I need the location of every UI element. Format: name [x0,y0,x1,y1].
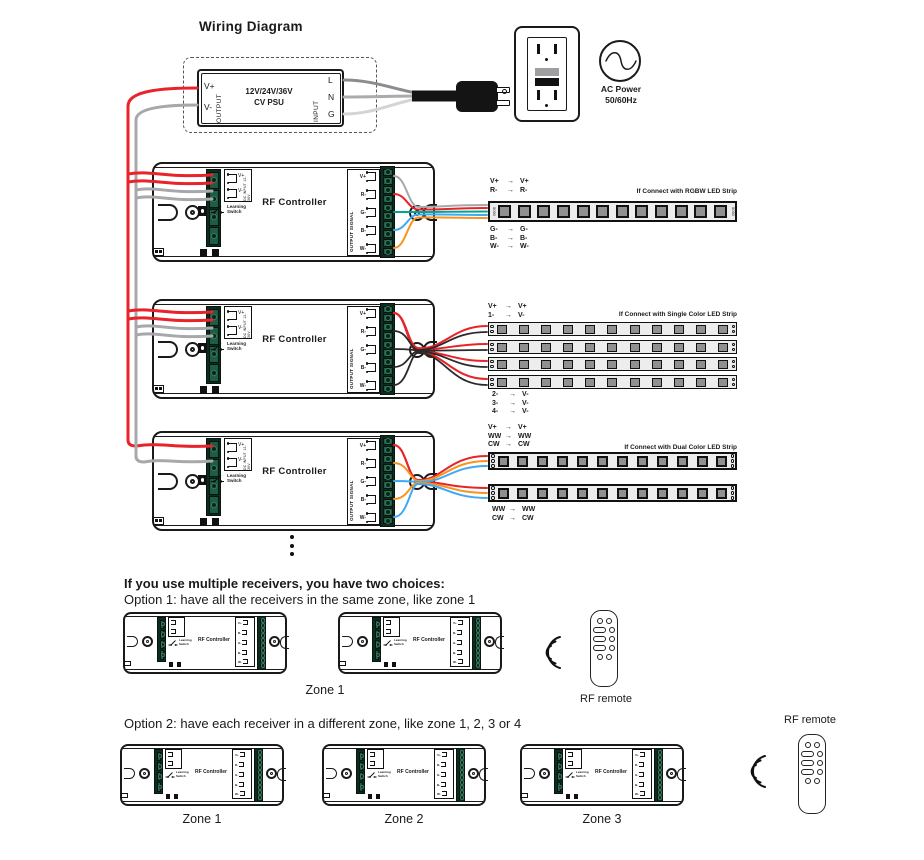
pad-hole [490,360,494,364]
page-title: Wiring Diagram [199,19,303,34]
outlet-slot-icon [537,44,540,54]
zone1-label-2: Zone 1 [162,812,242,826]
led-chip [497,343,507,352]
terminal-cell [459,776,463,780]
terminal-cell [383,438,393,446]
terminal-cell [359,752,363,761]
output-row: B- [356,226,376,235]
rf-controller-2: V+ V- DC INPUT 12-36V LearningSwitch RF … [152,299,435,399]
psu: V+ V- OUTPUT 12V/24V/36VCV PSU INPUT L N… [197,69,344,127]
terminal-cell [257,756,261,760]
dc-input-panel [168,617,185,637]
led-chip [630,360,640,369]
led-chip [563,325,573,334]
terminal-cell [475,639,479,643]
led-cells [495,323,731,335]
terminal-cell [257,776,261,780]
remote-button [805,742,811,748]
input-terminal-block [554,749,563,794]
plug-prong-icon [496,100,510,106]
indicator-led-icon [212,386,219,394]
remote-button [814,742,820,748]
terminal-cell [160,640,164,649]
screw-icon [266,768,277,779]
rf-remote-1 [590,610,618,687]
wire-vminus-bus [136,105,212,462]
terminal-cell [257,771,261,775]
led-chip [716,456,727,467]
switch-icon [383,639,393,647]
terminal-cell [459,766,463,770]
led-chip [716,488,727,499]
rgbw-top-labels: V+→V+ R-→R- [490,178,529,194]
cable-notch-icon [423,204,437,221]
strip-pads [731,325,737,334]
indicator-led-icon [212,518,219,526]
indicator-led-icon [200,518,207,526]
terminal-cell [209,496,219,514]
strip-pads [731,378,737,387]
rf-waves-icon [547,637,560,668]
single-bottom-labels: 2-→V- 3-→V- 4-→V- [492,391,529,415]
terminal-cell [375,650,379,659]
screw-icon [357,636,368,647]
terminal-cell [383,517,393,525]
dc-input-panel [367,749,384,769]
pad-hole [490,365,494,369]
rf-remote-2 [798,734,826,814]
psu-vminus-label: V- [204,102,212,112]
choices-heading: If you use multiple receivers, you have … [124,576,445,591]
led-chip [577,205,590,218]
terminal-cell [383,186,393,194]
output-terminal-block [654,748,663,802]
led-chip [607,360,617,369]
edge-connector-icon [323,793,330,798]
pad-hole [731,491,735,495]
terminal-cell [257,751,261,755]
terminal-cell [657,766,661,770]
led-chip [497,378,507,387]
terminal-cell [557,762,561,771]
rf-controller-mini-3: LearningSwitch RF Controller V+ R- G- B-… [120,744,284,806]
pad-hole [490,383,494,387]
led-chip [519,325,529,334]
edge-connector-icon [153,248,164,256]
led-chip [541,360,551,369]
led-cells [496,454,730,468]
power-plug [456,81,498,112]
led-chip [563,378,573,387]
terminal-cell [557,782,561,791]
wire-bracket-icon [228,458,237,467]
cable-notch-icon [479,768,488,781]
led-strip-dual-2 [488,484,737,502]
terminal-cell [383,455,393,463]
terminal-cell [557,772,561,781]
output-signal-label: OUTPUT SIGNAL [349,313,354,389]
terminal-cell [359,772,363,781]
terminal-cell [383,323,393,331]
match-button-icon [198,206,207,216]
terminal-cell [157,762,161,771]
pad-hole [731,486,735,490]
edge-connector-icon [153,517,164,525]
output-signal-label: OUTPUT SIGNAL [349,176,354,252]
led-chip [697,488,708,499]
output-terminal-block [254,748,263,802]
led-cells [495,358,731,370]
terminal-cell [257,791,261,795]
rf-controller-mini-5: LearningSwitch RF Controller V+ R- G- B-… [520,744,684,806]
outlet-slot-icon [554,90,557,100]
pad-hole [731,459,735,463]
pad-hole [491,486,495,490]
led-chip [630,343,640,352]
strip-pads [730,486,736,500]
remote-button [609,627,615,633]
wiring-layer [0,0,924,860]
output-panel: OUTPUT SIGNAL V+ R- G- B- W- [347,438,380,525]
led-chip [674,325,684,334]
led-chip [637,488,648,499]
remote-button [606,618,612,624]
indicator-led-icon [574,794,578,799]
terminal-cell [260,659,264,663]
wire-bracket-icon [228,189,237,198]
terminal-cell [383,376,393,384]
output-terminal-block [380,435,395,527]
learning-switch-label: LearningSwitch [227,204,246,215]
switch-icon [210,473,225,484]
terminal-cell [209,227,219,245]
terminal-cell [383,481,393,489]
output-row: B- [356,495,376,504]
mount-slot-icon [158,204,178,221]
terminal-cell [657,786,661,790]
learning-switch-label: LearningSwitch [227,341,246,352]
dc-input-panel [565,749,582,769]
led-chip [607,325,617,334]
pad-hole [732,365,736,369]
led-chip [517,488,528,499]
output-terminal-block [380,166,395,258]
terminal-cell [209,364,219,382]
led-chip [597,456,608,467]
led-chip [675,205,688,218]
led-chip [652,378,662,387]
led-chip [517,456,528,467]
terminal-cell [383,464,393,472]
led-chip [519,343,529,352]
controller-label: RF Controller [247,334,342,345]
strip-pads [730,454,736,468]
pad-hole [731,464,735,468]
remote-button [609,636,615,642]
terminal-cell [657,756,661,760]
led-chip [537,456,548,467]
led-chip [652,343,662,352]
mount-slot-icon [124,768,135,779]
dual-caption: If Connect with Dual Color LED Strip [560,444,737,451]
led-chip [657,456,668,467]
output-row: R- [356,190,376,199]
terminal-cell [157,752,161,761]
led-chip [652,325,662,334]
terminal-cell [160,630,164,639]
dc-input-panel [165,749,182,769]
edge-connector-icon [153,385,164,393]
led-chip [541,325,551,334]
rgbw-caption: If Connect with RGBW LED Strip [560,188,737,195]
led-chip [696,343,706,352]
output-row: B- [356,363,376,372]
led-chip [498,205,511,218]
led-strip-single-3 [488,357,737,371]
led-chip [657,488,668,499]
led-chip [696,378,706,387]
terminal-cell [260,629,264,633]
terminal-cell [459,751,463,755]
screw-icon [142,636,153,647]
terminal-cell [383,306,393,314]
controller-label: RF Controller [247,466,342,477]
rf-remote-label-2: RF remote [765,714,855,726]
output-row: G- [356,477,376,486]
indicator-led-icon [566,794,570,799]
pad-hole [732,378,736,382]
outlet-ground-icon [545,104,548,107]
outlet-bar-icon [535,78,559,86]
terminal-cell [257,781,261,785]
led-strip-rgbw: 5050 5050 [488,201,737,222]
led-chip [630,325,640,334]
output-panel: V+ R- G- B- W- [235,617,255,667]
terminal-cell [383,314,393,322]
led-chip [637,456,648,467]
zone3-label: Zone 3 [562,812,642,826]
led-chip [537,205,550,218]
wire-bracket-icon [228,174,237,183]
rgbw-bottom-labels: G-→G- B-→B- W-→W- [490,226,529,250]
outlet-slot-icon [537,90,540,100]
terminal-cell [383,239,393,247]
remote-button [801,769,814,775]
output-row: R- [356,459,376,468]
psu-output-label: OUTPUT [216,78,223,123]
led-chip [652,360,662,369]
led-chip [616,205,629,218]
pad-hole [491,464,495,468]
led-chip [718,325,728,334]
cable-notch-icon [423,341,437,358]
switch-icon [165,771,175,779]
terminal-cell [657,781,661,785]
terminal-cell [260,619,264,623]
led-chip [498,488,509,499]
led-chip [677,456,688,467]
wiring-diagram-page: Wiring Diagram V+ V- OUTPUT 12V/24V/36VC… [0,0,924,860]
led-chip [607,343,617,352]
screw-icon [539,768,550,779]
outlet-face [527,37,567,111]
indicator-led-icon [212,249,219,257]
led-chip [577,488,588,499]
remote-button [817,751,823,757]
remote-button [609,645,615,651]
pad-hole [490,378,494,382]
pad-hole [490,348,494,352]
led-chip [563,360,573,369]
output-panel: V+ R- G- B- W- [434,749,454,799]
led-cells [495,376,731,388]
led-chip [518,205,531,218]
led-chip [718,378,728,387]
pad-hole [731,454,735,458]
chip-label: 5050 [729,207,735,216]
terminal-cell [383,490,393,498]
led-chip [585,343,595,352]
remote-button [593,636,606,642]
rf-remote-label-1: RF remote [561,693,651,705]
strip-pads [731,343,737,352]
plug-prong-icon [496,87,510,93]
terminal-cell [383,341,393,349]
terminal-cell [383,169,393,177]
screw-icon [139,768,150,779]
terminal-cell [383,473,393,481]
output-panel: V+ R- G- B- W- [632,749,652,799]
led-chip [577,456,588,467]
zone1-label: Zone 1 [285,683,365,697]
pad-hole [732,343,736,347]
psu-model-label: 12V/24V/36VCV PSU [231,87,307,109]
rf-controller-1: V+ V- DC INPUT 12-36V LearningSwitch RF … [152,162,435,262]
terminal-cell [359,782,363,791]
remote-button [817,760,823,766]
terminal-cell [383,499,393,507]
led-chip [585,360,595,369]
remote-button [805,778,811,784]
led-chip [597,488,608,499]
led-chip [674,378,684,387]
terminal-cell [209,172,219,190]
cable-notch-icon [677,768,686,781]
terminal-cell [557,752,561,761]
terminal-cell [383,367,393,375]
terminal-cell [157,772,161,781]
pad-hole [490,330,494,334]
option2-text: Option 2: have each receiver in a differ… [124,716,521,731]
remote-button [817,769,823,775]
indicator-led-icon [200,249,207,257]
terminal-cell [383,385,393,393]
screw-icon [269,636,280,647]
led-chip [718,360,728,369]
rf-controller-mini-4: LearningSwitch RF Controller V+ R- G- B-… [322,744,486,806]
terminal-cell [257,766,261,770]
dc-input-panel [383,617,400,637]
led-chip [557,456,568,467]
pad-hole [491,454,495,458]
terminal-cell [475,634,479,638]
terminal-cell [260,624,264,628]
input-terminal-block [372,617,381,662]
terminal-cell [257,761,261,765]
learning-switch: LearningSwitch [210,341,246,352]
outlet-ground-icon [545,58,548,61]
led-strip-single-2 [488,340,737,354]
switch-icon [210,204,225,215]
terminal-cell [657,791,661,795]
terminal-cell [383,508,393,516]
pad-hole [490,325,494,329]
terminal-cell [375,620,379,629]
remote-button [597,654,603,660]
led-chip [498,456,509,467]
output-terminal-block [380,303,395,395]
learning-switch: LearningSwitch [210,473,246,484]
output-row: V+ [356,441,376,450]
indicator-led-icon [200,386,207,394]
terminal-cell [657,796,661,800]
led-strip-single-1 [488,322,737,336]
outlet-bar-icon [535,68,559,76]
led-chip [674,360,684,369]
indicator-led-icon [384,662,388,667]
single-caption: If Connect with Single Color LED Strip [560,311,737,318]
led-chip [607,378,617,387]
indicator-led-icon [174,794,178,799]
mount-slot-icon [127,636,138,647]
output-row: W- [356,381,376,390]
led-chip [519,378,529,387]
pad-hole [732,348,736,352]
psu-terminal-n: N [328,92,334,102]
edge-connector-icon [521,793,528,798]
terminal-cell [459,781,463,785]
psu-terminal-g: G [328,109,335,119]
remote-button [801,751,814,757]
terminal-cell [157,782,161,791]
terminal-cell [260,649,264,653]
rf-controller-mini-1: LearningSwitch RF Controller V+ R- G- B-… [123,612,287,674]
terminal-cell [459,786,463,790]
led-chip [694,205,707,218]
edge-connector-icon [121,793,128,798]
terminal-cell [375,640,379,649]
led-chip [697,456,708,467]
terminal-cell [260,644,264,648]
terminal-cell [459,796,463,800]
terminal-cell [475,659,479,663]
led-chip [557,488,568,499]
remote-button [814,778,820,784]
led-chip [696,325,706,334]
switch-icon [168,639,178,647]
terminal-cell [383,358,393,366]
led-chip [596,205,609,218]
led-cells [495,341,731,353]
terminal-cell [475,644,479,648]
led-chip [497,360,507,369]
remote-button [593,645,606,651]
rf-controller-3: V+ V- DC INPUT 12-36V LearningSwitch RF … [152,431,435,531]
switch-icon [565,771,575,779]
indicator-led-icon [169,662,173,667]
led-chip [497,325,507,334]
terminal-cell [383,212,393,220]
